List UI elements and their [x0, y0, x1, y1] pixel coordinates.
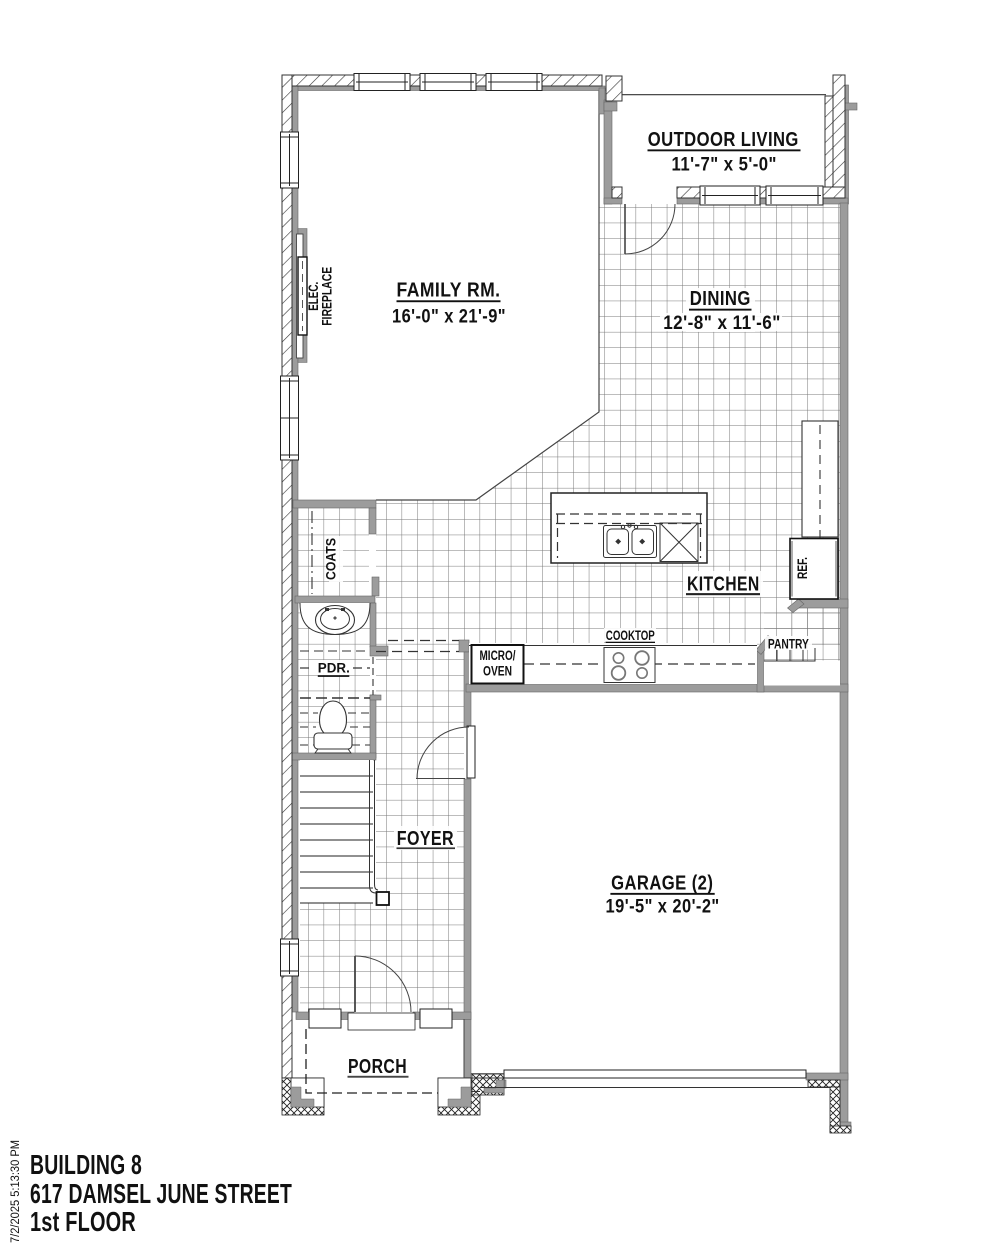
svg-text:GARAGE (2): GARAGE (2)	[611, 873, 713, 895]
svg-text:7/2/2025 5:13:30 PM: 7/2/2025 5:13:30 PM	[10, 1140, 22, 1243]
svg-text:FIREPLACE: FIREPLACE	[320, 267, 335, 326]
svg-text:KITCHEN: KITCHEN	[687, 573, 760, 595]
svg-text:PORCH: PORCH	[348, 1056, 407, 1078]
svg-text:REF.: REF.	[795, 557, 810, 579]
svg-text:PANTRY: PANTRY	[768, 637, 809, 652]
svg-text:FAMILY RM.: FAMILY RM.	[397, 280, 501, 302]
svg-text:OUTDOOR LIVING: OUTDOOR LIVING	[648, 129, 799, 151]
svg-text:COOKTOP: COOKTOP	[606, 628, 655, 643]
svg-text:19'-5" x 20'-2": 19'-5" x 20'-2"	[606, 897, 720, 918]
svg-text:FOYER: FOYER	[397, 828, 454, 850]
svg-text:DINING: DINING	[690, 288, 751, 310]
svg-text:BUILDING 8: BUILDING 8	[30, 1149, 142, 1180]
svg-text:617 DAMSEL JUNE STREET: 617 DAMSEL JUNE STREET	[30, 1178, 292, 1209]
svg-text:OVEN: OVEN	[483, 664, 512, 679]
svg-text:PDR.: PDR.	[318, 660, 350, 675]
svg-text:MICRO/: MICRO/	[480, 648, 516, 663]
svg-text:16'-0" x 21'-9": 16'-0" x 21'-9"	[392, 306, 506, 327]
svg-text:11'-7" x 5'-0": 11'-7" x 5'-0"	[672, 155, 777, 176]
svg-text:COATS: COATS	[324, 538, 339, 580]
svg-text:12'-8" x 11'-6": 12'-8" x 11'-6"	[663, 313, 781, 334]
svg-text:1st FLOOR: 1st FLOOR	[30, 1206, 136, 1237]
